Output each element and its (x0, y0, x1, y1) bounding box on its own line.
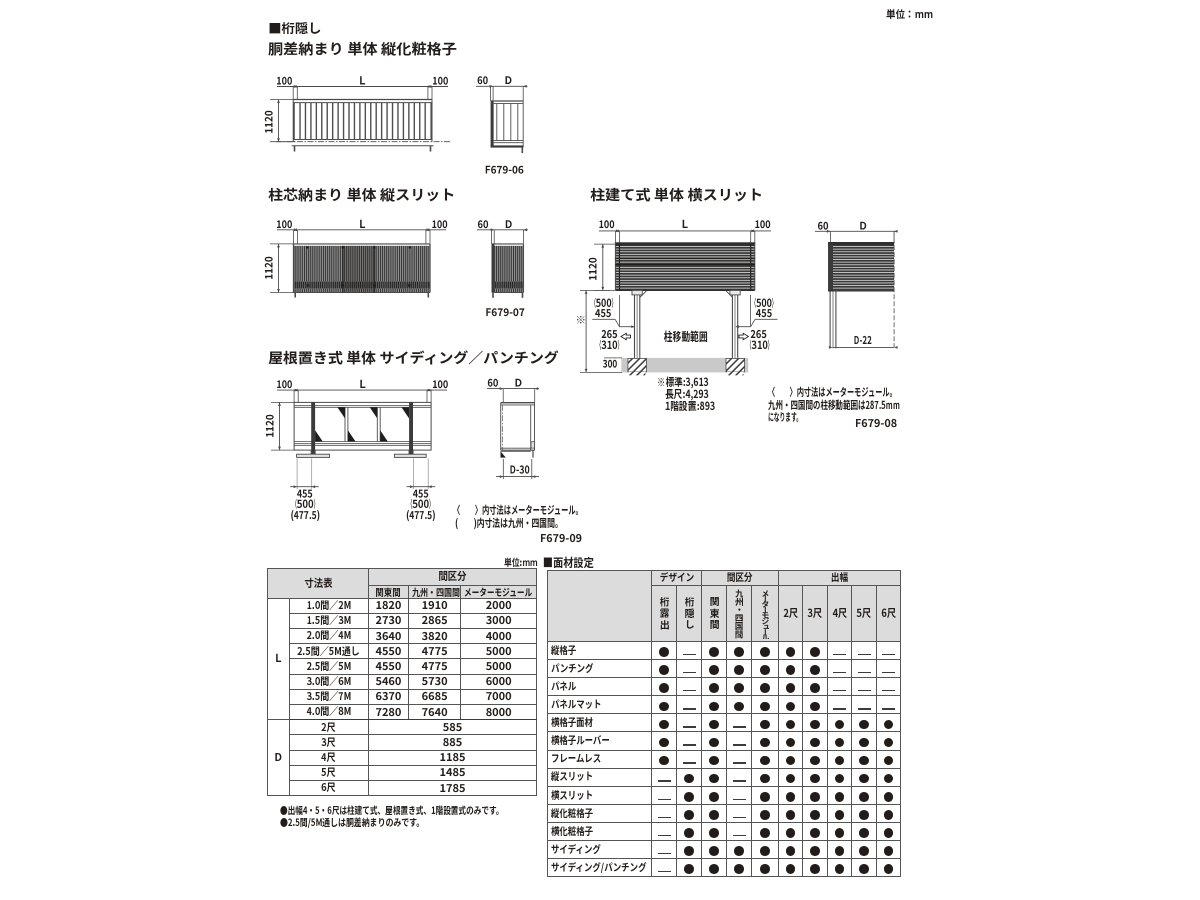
svg-text:455: 455 (595, 305, 611, 321)
svg-text:〈310〉: 〈310〉 (748, 337, 772, 353)
svg-text:1階設置:893: 1階設置:893 (665, 398, 715, 414)
svg-text:柱移動範囲: 柱移動範囲 (663, 328, 707, 345)
svg-text:1120: 1120 (262, 110, 277, 133)
svg-text:L: L (682, 216, 688, 232)
svg-text:(477.5): (477.5) (291, 507, 320, 523)
svg-text:100: 100 (755, 217, 771, 232)
svg-text:D: D (515, 375, 523, 390)
svg-text:1120: 1120 (262, 256, 277, 279)
svg-text:D-30: D-30 (510, 461, 530, 477)
svg-text:100: 100 (599, 217, 615, 232)
svg-text:1120: 1120 (263, 414, 278, 437)
svg-text:1120: 1120 (586, 257, 601, 280)
svg-text:F679-07: F679-07 (485, 305, 524, 320)
svg-text:60: 60 (477, 73, 488, 88)
svg-text:455: 455 (756, 305, 772, 321)
svg-text:F679-06: F679-06 (485, 163, 524, 178)
svg-text:D-22: D-22 (854, 332, 872, 348)
svg-text:300: 300 (603, 356, 618, 371)
svg-text:L: L (359, 376, 365, 392)
svg-text:〈310〉: 〈310〉 (597, 337, 621, 353)
svg-text:100: 100 (432, 377, 448, 392)
svg-text:D: D (504, 73, 512, 88)
svg-text:(477.5): (477.5) (406, 507, 435, 523)
svg-text:100: 100 (276, 377, 292, 392)
svg-text:※: ※ (576, 313, 587, 328)
svg-text:60: 60 (487, 375, 498, 390)
